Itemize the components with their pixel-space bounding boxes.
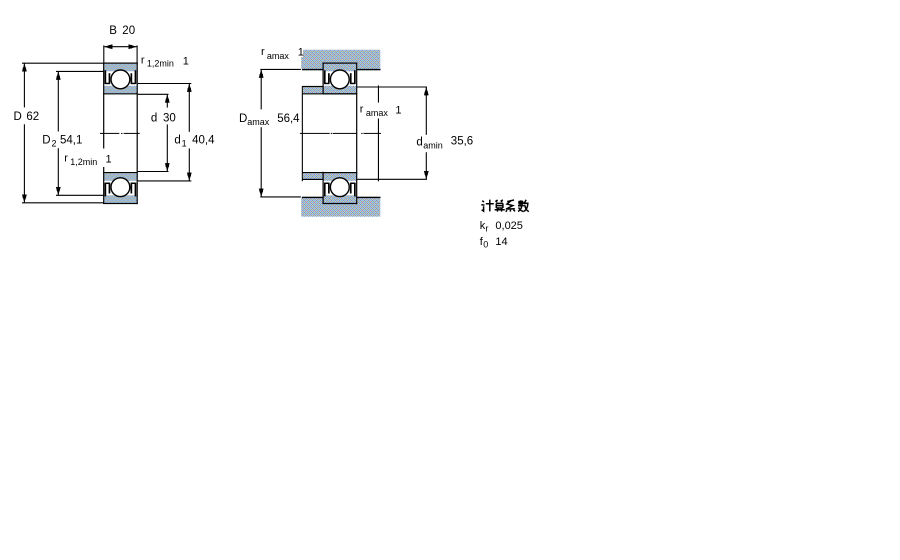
svg-text:d: d — [174, 134, 180, 146]
svg-text:35,6: 35,6 — [451, 136, 473, 148]
svg-text:14: 14 — [495, 236, 507, 248]
svg-text:1,2min: 1,2min — [147, 59, 174, 69]
svg-text:r: r — [360, 103, 364, 115]
svg-text:1: 1 — [395, 104, 401, 116]
svg-text:56,4: 56,4 — [277, 113, 300, 125]
svg-text:1,2min: 1,2min — [70, 157, 97, 167]
svg-text:d: d — [416, 136, 422, 148]
svg-text:0: 0 — [483, 239, 488, 249]
svg-text:r: r — [64, 153, 68, 165]
svg-text:amax: amax — [366, 108, 389, 118]
svg-text:D: D — [14, 111, 22, 123]
svg-text:r: r — [141, 54, 145, 66]
svg-text:r: r — [485, 223, 488, 233]
svg-text:d: d — [151, 113, 157, 125]
svg-text:1: 1 — [298, 47, 304, 59]
svg-text:54,1: 54,1 — [60, 135, 82, 147]
svg-text:40,4: 40,4 — [192, 134, 215, 146]
svg-text:D: D — [42, 135, 50, 147]
svg-text:1: 1 — [106, 153, 112, 165]
svg-text:1: 1 — [183, 55, 189, 67]
svg-text:1: 1 — [182, 138, 187, 148]
svg-text:r: r — [261, 46, 265, 58]
svg-text:amax: amax — [247, 117, 270, 127]
svg-text:amax: amax — [267, 51, 290, 61]
svg-text:B: B — [109, 25, 117, 37]
svg-text:20: 20 — [122, 25, 135, 37]
svg-text:30: 30 — [163, 113, 176, 125]
svg-text:amin: amin — [423, 140, 443, 150]
svg-text:0,025: 0,025 — [495, 220, 523, 232]
svg-text:2: 2 — [52, 139, 57, 149]
svg-text:D: D — [239, 113, 247, 125]
svg-text:62: 62 — [26, 111, 39, 123]
